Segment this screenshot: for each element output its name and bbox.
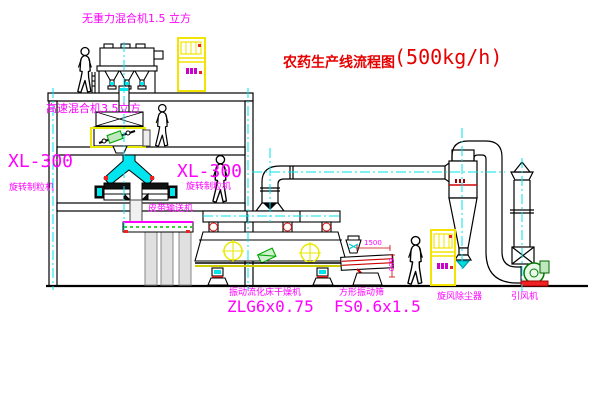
label-granulator-left-name: 旋转制粒机 [9,184,54,193]
label-cyclone: 旋风除尘器 [437,293,482,302]
exhaust-duct [256,161,452,211]
diagram-capacity: (500kg/h) [394,45,502,69]
induced-draft-fan [521,261,549,286]
belt-conveyor [123,222,193,233]
person-floor2 [156,104,169,146]
fluid-bed-dryer [195,211,346,285]
dim-sieve-length: 1500 [364,240,382,247]
control-cabinet-roof [178,38,205,91]
diagram-title: 农药生产线流程图 [283,52,395,72]
control-cabinet-ground [431,230,455,285]
pesticide-production-line-diagram: 农药生产线流程图 (500kg/h) 无重力混合机1.5 立方 高速混合机3.5… [0,0,600,403]
label-gravity-free-mixer: 无重力混合机1.5 立方 [82,13,191,24]
label-fan: 引风机 [511,293,538,302]
person-ground [408,237,422,285]
label-high-speed-mixer: 高速混合机3.5立方 [46,103,141,114]
label-granulator-right-model: XL-300 [177,163,242,181]
label-belt-conveyor: 皮带输送机 [148,205,193,214]
person-on-roof [78,48,92,93]
dryer-spring-mounts [209,222,331,232]
dim-sieve-height: 600 [387,258,394,271]
label-sieve-model: FS0.6x1.5 [334,299,421,315]
y-splitter [104,155,154,185]
label-granulator-left-model: XL-300 [8,153,73,171]
discharge-pipe [130,200,142,223]
conveyor-supports [145,232,191,285]
dryer-feet [208,268,333,285]
label-granulator-right-name: 旋转制粒机 [186,183,231,192]
rotary-granulators [95,183,177,200]
label-dryer-model: ZLG6x0.75 [227,299,314,315]
